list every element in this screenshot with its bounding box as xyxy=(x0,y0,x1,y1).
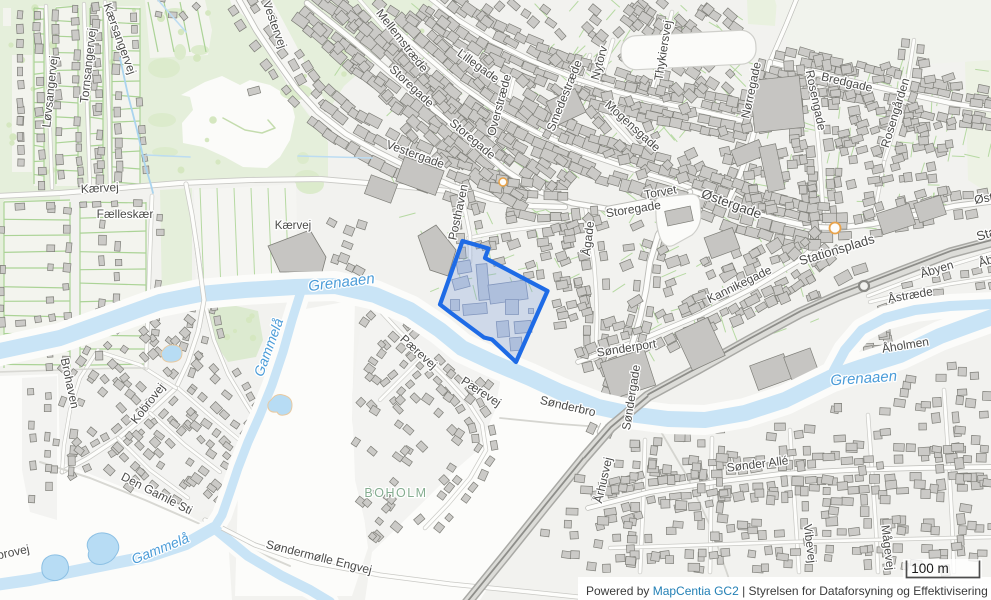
svg-text:Kærvej: Kærvej xyxy=(80,180,119,196)
svg-text:BOHOLM: BOHOLM xyxy=(364,486,427,500)
svg-text:Powered by MapCentia GC2 | Sty: Powered by MapCentia GC2 | Styrelsen for… xyxy=(586,584,988,598)
svg-text:100 m: 100 m xyxy=(911,561,949,576)
svg-text:Fælleskær: Fælleskær xyxy=(97,207,154,221)
svg-text:Kærvej: Kærvej xyxy=(275,220,311,232)
